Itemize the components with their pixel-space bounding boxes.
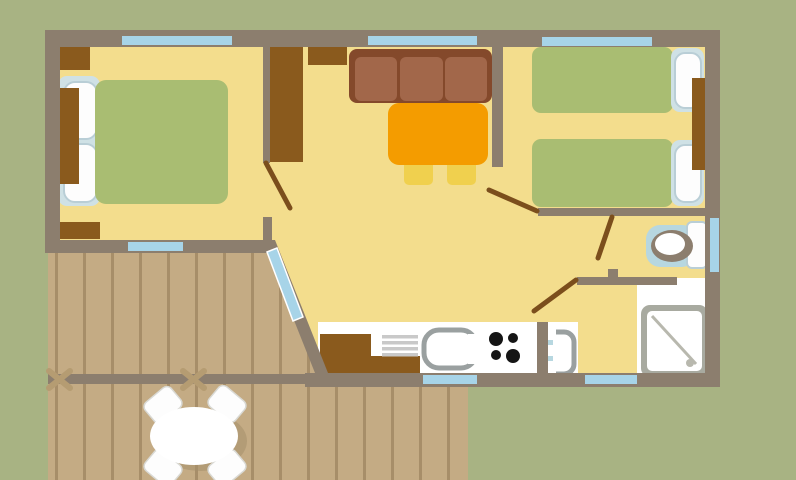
wc-area	[646, 222, 707, 268]
window-icon	[423, 375, 477, 384]
twin-bed-icon	[532, 47, 704, 113]
floor-plan-canvas	[0, 0, 796, 480]
kitchen	[318, 322, 537, 373]
double-bed-icon	[58, 76, 228, 206]
deck-railing	[48, 374, 310, 384]
window-icon	[368, 36, 477, 45]
cabinet-icon	[60, 222, 100, 239]
shower-icon	[641, 305, 708, 377]
tap	[548, 340, 553, 345]
wall-bedroom2-bottom	[538, 208, 720, 216]
window-icon	[128, 242, 183, 251]
wall-stub	[263, 217, 272, 247]
wall-left	[45, 30, 60, 253]
wall-bedroom2-partition	[492, 47, 503, 167]
window-icon	[585, 375, 637, 384]
shower-drain	[686, 359, 694, 367]
twin-bed-icon	[532, 139, 704, 207]
wardrobe-icon	[60, 47, 90, 70]
floor-plan	[0, 0, 796, 480]
tall-wardrobe-icon	[270, 47, 303, 162]
washbasin-icon	[548, 322, 578, 375]
wall-bathroom	[577, 277, 677, 285]
wall-bottom	[305, 373, 720, 387]
wall-bedroom1-partition	[263, 47, 270, 163]
window-icon	[542, 37, 652, 46]
mattress	[95, 80, 228, 204]
headboard	[60, 88, 79, 184]
tap	[548, 356, 553, 361]
wall-bathroom-pier	[608, 269, 618, 277]
shelf-icon	[308, 47, 347, 65]
window-icon	[122, 36, 232, 45]
patio-table-top	[150, 407, 238, 465]
sofa-icon	[349, 49, 492, 103]
kitchen-sink-icon	[424, 330, 480, 368]
window-icon	[710, 218, 719, 272]
nightstand-icon	[692, 78, 705, 170]
wall-kitchen-divider	[537, 322, 548, 373]
toilet-icon	[646, 222, 707, 268]
